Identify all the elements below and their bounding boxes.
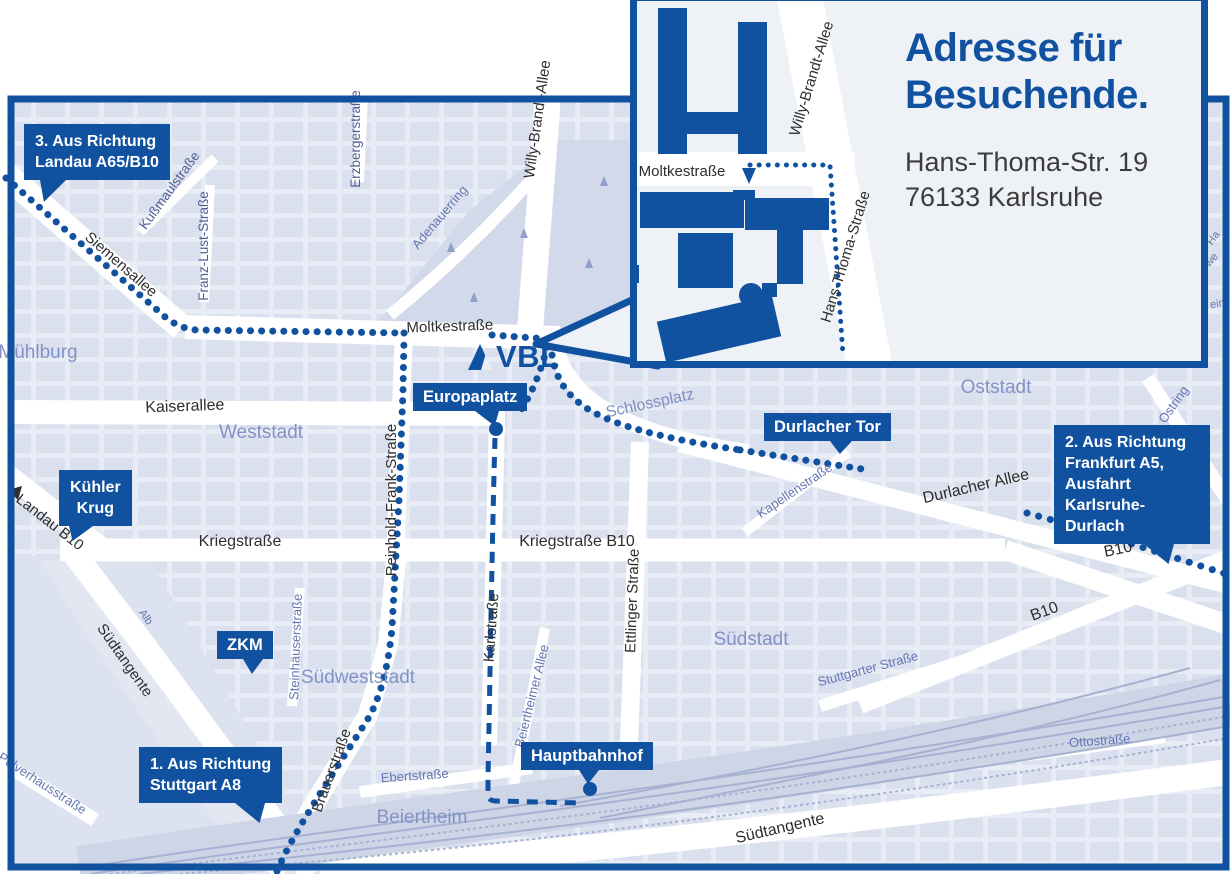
callout-hauptbahnhof: Hauptbahnhof (521, 742, 653, 770)
label-moltkestrasse: Moltkestraße (406, 316, 493, 336)
vbl-logo: VBL (466, 342, 560, 372)
label-kriegstrasse: Kriegstraße (199, 533, 282, 550)
callout-durlacher-tor-text: Durlacher Tor (774, 418, 881, 436)
label-franz-lust-strasse: Franz-Lust-Straße (196, 191, 211, 301)
hauptbahnhof-marker (583, 782, 597, 796)
inset-address: Hans-Thoma-Str. 19 76133 Karlsruhe (905, 145, 1197, 215)
callout-europaplatz-text: Europaplatz (423, 388, 517, 406)
europaplatz-marker (489, 422, 503, 436)
label-suedstadt: Südstadt (714, 629, 790, 650)
inset-label-moltkestrasse: Moltkestraße (639, 163, 726, 180)
callout-frankfurt-text: 2. Aus Richtung Frankfurt A5, Ausfahrt K… (1065, 432, 1199, 537)
callout-frankfurt: 2. Aus Richtung Frankfurt A5, Ausfahrt K… (1054, 425, 1210, 544)
inset-text-block: Adresse für Besuchende. Hans-Thoma-Str. … (905, 25, 1197, 215)
label-weststadt: Weststadt (219, 422, 304, 443)
callout-hauptbahnhof-text: Hauptbahnhof (531, 747, 643, 765)
vbl-triangle-icon (466, 342, 496, 372)
inset-title: Adresse für Besuchende. (905, 25, 1197, 119)
label-kriegstrasse-b10: Kriegstraße B10 (519, 533, 635, 550)
callout-kuehler-krug-text: Kühler Krug (70, 477, 121, 519)
callout-landau: 3. Aus Richtung Landau A65/B10 (24, 124, 170, 180)
callout-landau-text: 3. Aus Richtung Landau A65/B10 (35, 131, 159, 173)
label-kaiserallee: Kaiserallee (145, 397, 225, 417)
label-suedweststadt: Südweststadt (301, 667, 416, 688)
callout-stuttgart-text: 1. Aus Richtung Stuttgart A8 (150, 754, 271, 796)
inset-detail-panel: Moltkestraße Willy-Brandt-Allee Hans-Tho… (630, 0, 1208, 368)
label-erzbergerstrasse: Erzbergerstraße (348, 90, 363, 188)
vbl-logo-text: VBL (496, 342, 560, 372)
callout-europaplatz: Europaplatz (413, 383, 527, 411)
callout-zkm-text: ZKM (227, 636, 263, 654)
callout-stuttgart: 1. Aus Richtung Stuttgart A8 (139, 747, 282, 803)
label-ettlinger-strasse: Ettlinger Straße (622, 548, 643, 653)
callout-zkm: ZKM (217, 631, 273, 659)
callout-kuehler-krug: Kühler Krug (59, 470, 132, 526)
karlsruhe-directions-map: Siemensallee Moltkestraße Kaiserallee Kr… (0, 0, 1230, 874)
callout-durlacher-tor: Durlacher Tor (764, 413, 891, 441)
label-reinhold-frank: Reinhold-Frank-Straße (383, 424, 400, 577)
label-oststadt: Oststadt (961, 377, 1032, 398)
label-beiertheim: Beiertheim (377, 807, 468, 828)
